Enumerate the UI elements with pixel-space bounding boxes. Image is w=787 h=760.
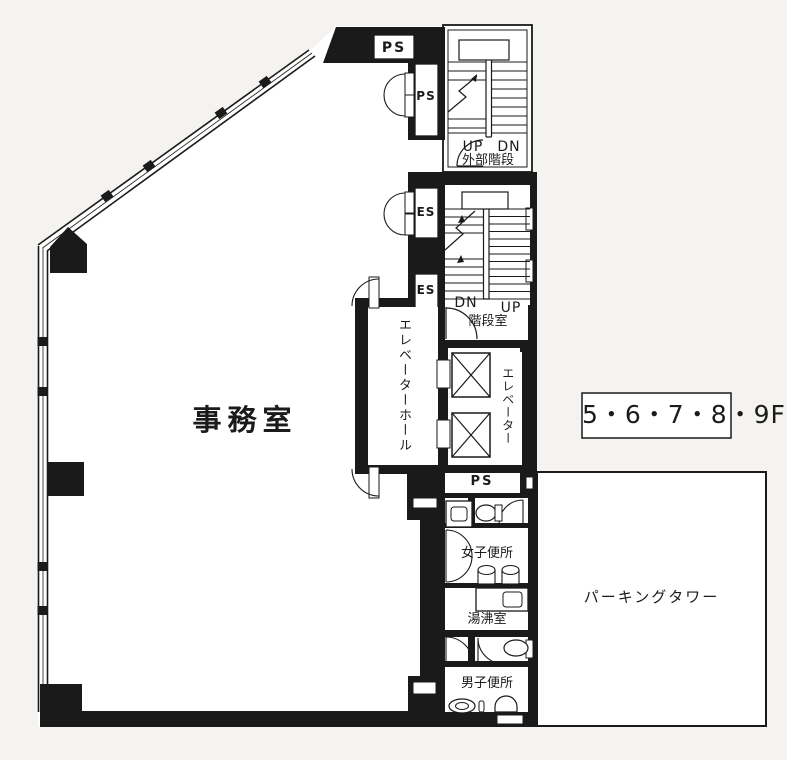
- internal-stair-label: 階段室: [448, 315, 528, 330]
- floor-plan: 事務室 5・6・7・8・9F パーキングタワー PS PS UP DN 外部階段…: [0, 0, 787, 760]
- wall-slot: [526, 477, 533, 489]
- ps-lower-label: PS: [450, 475, 514, 490]
- external-stair-label: 外部階段: [442, 154, 534, 169]
- mens-toilet-bowl: [504, 640, 528, 656]
- elevator-label: エレベーター: [500, 367, 514, 467]
- ps-shaft-label: PS: [409, 90, 443, 104]
- wall-slot: [526, 208, 533, 230]
- wall-slot: [526, 260, 533, 282]
- womens-toilet-label: 女子便所: [446, 547, 528, 562]
- kitchen-counter: [476, 588, 528, 611]
- ps-top-label: PS: [374, 40, 414, 56]
- kitchenette-label: 湯沸室: [452, 613, 522, 628]
- floor-plan-drawing: [0, 0, 787, 760]
- floor-badge: 5・6・7・8・9F: [582, 401, 731, 430]
- washbasin: [446, 501, 472, 527]
- wall-slot: [497, 715, 523, 724]
- wall-slot: [413, 682, 436, 694]
- es-upper-label: ES: [409, 206, 443, 220]
- es-lower-label: ES: [409, 284, 443, 298]
- parking-tower-label: パーキングタワー: [560, 589, 743, 606]
- wall-slot: [413, 498, 437, 508]
- mens-toilet-label: 男子便所: [446, 677, 528, 692]
- womens-toilet-bowl: [476, 505, 502, 521]
- elevator-door: [437, 420, 450, 448]
- elevator-door: [437, 360, 450, 388]
- stairwell: [445, 185, 530, 305]
- office-label: 事務室: [130, 404, 360, 437]
- internal-stair-dn: DN: [449, 295, 483, 311]
- elevator-hall-label: エレベーターホール: [395, 318, 410, 460]
